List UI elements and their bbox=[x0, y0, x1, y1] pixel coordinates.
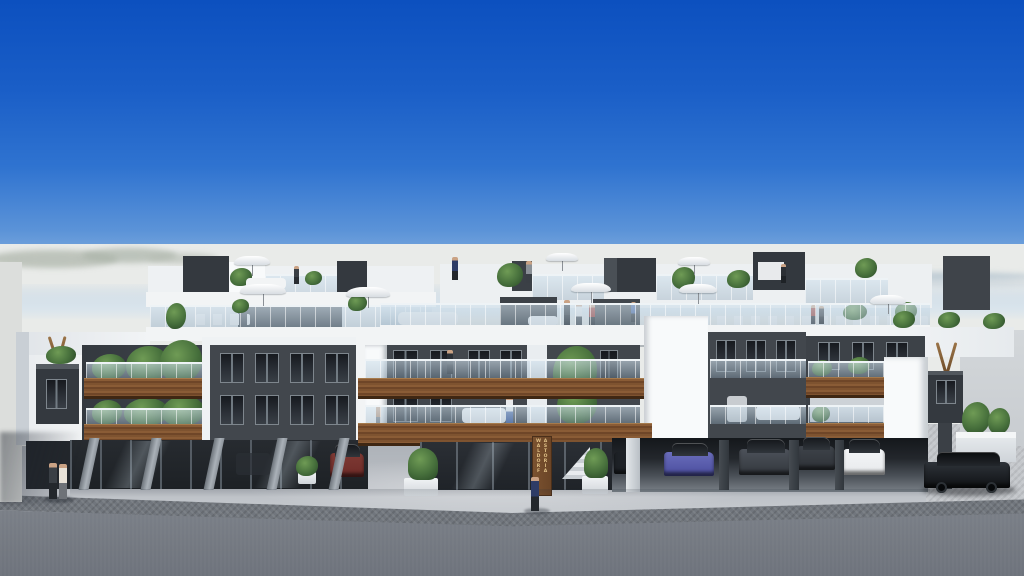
rooftop-plant bbox=[305, 271, 322, 285]
garage-pillar bbox=[789, 440, 799, 490]
garage-car bbox=[236, 453, 270, 475]
window bbox=[290, 395, 314, 425]
car-wheel bbox=[936, 482, 947, 493]
umbrella bbox=[546, 253, 578, 261]
window bbox=[325, 395, 349, 425]
pedestrian bbox=[531, 477, 539, 511]
rooftop-plant bbox=[938, 312, 960, 328]
window bbox=[255, 395, 279, 425]
rooftop-person bbox=[526, 261, 532, 283]
left-end-cube-top bbox=[36, 364, 79, 369]
window bbox=[290, 353, 314, 383]
umbrella bbox=[571, 283, 611, 292]
umbrella bbox=[240, 284, 286, 294]
terrace-plant bbox=[166, 303, 186, 329]
glass-railing bbox=[365, 405, 640, 424]
rooftop-plant bbox=[893, 311, 915, 328]
window bbox=[325, 353, 349, 383]
planter-plant bbox=[988, 408, 1010, 434]
umbrella bbox=[678, 257, 710, 265]
glass-railing bbox=[710, 405, 806, 424]
terrace-plant bbox=[232, 299, 249, 313]
stair-tower-right bbox=[943, 256, 990, 310]
window bbox=[936, 380, 956, 404]
car-cabin bbox=[849, 439, 880, 453]
rooftop-person bbox=[781, 264, 786, 283]
umbrella bbox=[870, 295, 906, 304]
street-plant bbox=[296, 456, 318, 476]
architectural-render-scene: WALDORF ASTORIA bbox=[0, 0, 1024, 576]
balcony-wood-band bbox=[84, 378, 208, 399]
terrace-plant bbox=[348, 295, 367, 311]
rooftop-plant bbox=[497, 263, 523, 287]
window bbox=[255, 353, 279, 383]
car-white-suv bbox=[843, 449, 885, 475]
ground-shadow bbox=[70, 489, 930, 497]
car-wheel bbox=[986, 482, 997, 493]
car-cabin bbox=[803, 437, 831, 450]
planter-palm bbox=[962, 402, 990, 434]
glass-railing bbox=[365, 359, 640, 378]
portal-pier-right bbox=[644, 316, 708, 443]
sign-text-right: ASTORIA bbox=[543, 439, 548, 495]
rooftop-plant bbox=[983, 313, 1005, 329]
car-cabin bbox=[937, 452, 1000, 466]
plant bbox=[46, 346, 76, 364]
car-cabin bbox=[747, 439, 785, 453]
window bbox=[46, 379, 67, 409]
right-end-cube-top bbox=[928, 371, 963, 375]
left-wing-edge bbox=[16, 332, 29, 445]
glass-railing bbox=[710, 359, 806, 378]
car-cabin bbox=[672, 443, 709, 456]
pedestrian bbox=[49, 463, 57, 499]
garage-pillar bbox=[835, 440, 844, 490]
rooftop-plant bbox=[855, 258, 877, 278]
umbrella bbox=[234, 256, 270, 265]
car-dark-suv bbox=[797, 446, 835, 470]
garage-pillar bbox=[719, 440, 729, 490]
window bbox=[220, 353, 244, 383]
balcony-wood-band bbox=[358, 378, 648, 399]
entrance-palm bbox=[408, 448, 438, 480]
entrance-palm bbox=[584, 448, 608, 478]
pedestrian bbox=[59, 464, 67, 499]
rooftop-person bbox=[294, 266, 299, 284]
rooftop-person bbox=[452, 257, 458, 280]
rooftop-plant bbox=[727, 270, 750, 288]
car-blue-sedan bbox=[664, 452, 714, 476]
umbrella bbox=[346, 287, 390, 297]
car-dark-suv bbox=[739, 449, 791, 475]
garage-pillar-white bbox=[626, 438, 640, 492]
window bbox=[220, 395, 244, 425]
umbrella bbox=[679, 284, 717, 293]
